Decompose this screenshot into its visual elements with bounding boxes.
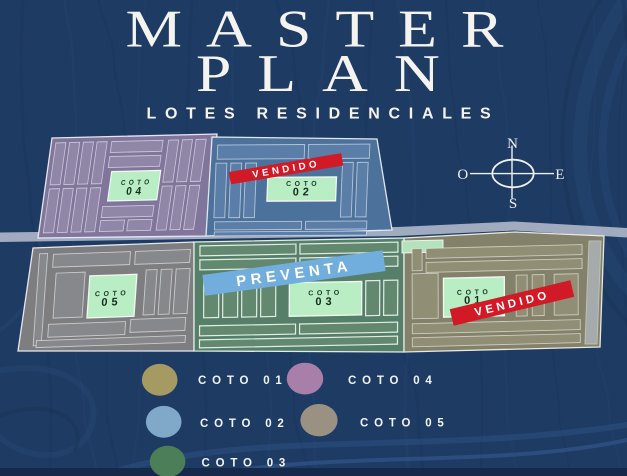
svg-text:04: 04 (125, 185, 145, 198)
svg-text:E: E (555, 167, 564, 183)
svg-text:COTO 05: COTO 05 (360, 418, 450, 430)
svg-text:LOTES RESIDENCIALES: LOTES RESIDENCIALES (147, 106, 500, 123)
svg-text:N: N (507, 136, 518, 152)
svg-text:COTO 02: COTO 02 (200, 418, 290, 430)
svg-text:O: O (457, 167, 468, 183)
svg-text:02: 02 (293, 186, 313, 198)
svg-text:PLAN: PLAN (196, 44, 466, 103)
svg-text:03: 03 (315, 296, 335, 308)
svg-text:COTO 04: COTO 04 (348, 375, 438, 387)
svg-text:S: S (509, 196, 517, 212)
svg-text:COTO 03: COTO 03 (202, 458, 292, 470)
svg-text:05: 05 (101, 296, 122, 309)
svg-text:COTO 01: COTO 01 (198, 375, 288, 387)
